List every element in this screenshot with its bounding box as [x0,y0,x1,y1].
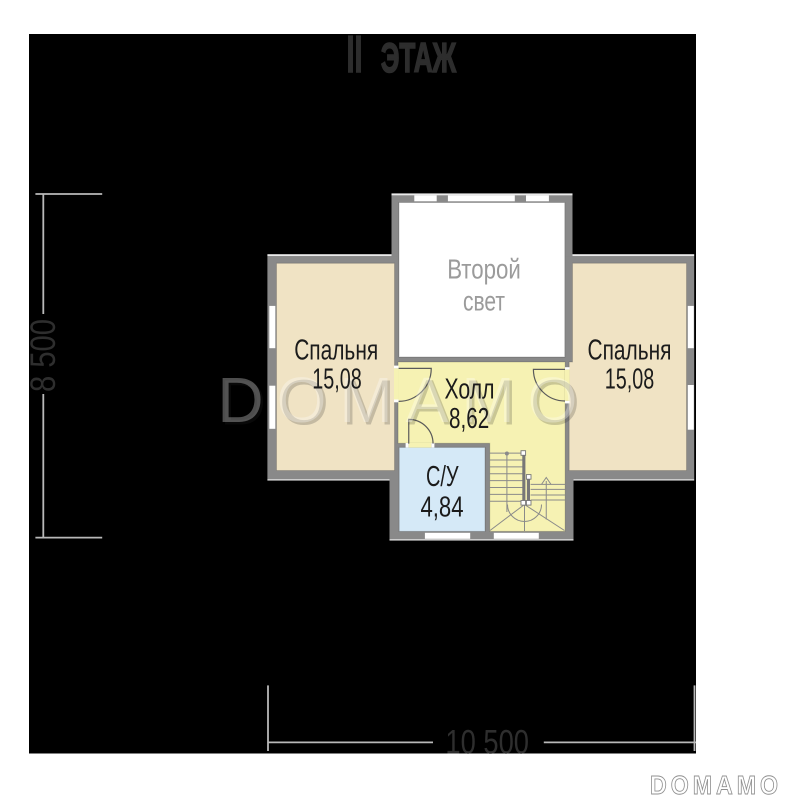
svg-text:8,62: 8,62 [449,403,489,435]
svg-text:8 500: 8 500 [24,319,63,392]
svg-text:II: II [347,26,363,84]
svg-text:15,08: 15,08 [312,364,362,396]
svg-text:Холл: Холл [445,374,495,406]
svg-text:свет: свет [463,285,505,316]
svg-text:Второй: Второй [447,254,521,285]
svg-text:ЭТАЖ: ЭТАЖ [381,34,457,81]
svg-text:10 500: 10 500 [445,724,529,762]
svg-text:4,84: 4,84 [420,491,463,523]
svg-text:Спальня: Спальня [294,335,378,367]
svg-text:С/У: С/У [426,461,459,493]
svg-text:15,08: 15,08 [605,364,655,396]
svg-text:Спальня: Спальня [588,335,672,367]
svg-text:DOMAMO: DOMAMO [217,364,590,436]
svg-text:DOMAMO: DOMAMO [650,770,782,800]
